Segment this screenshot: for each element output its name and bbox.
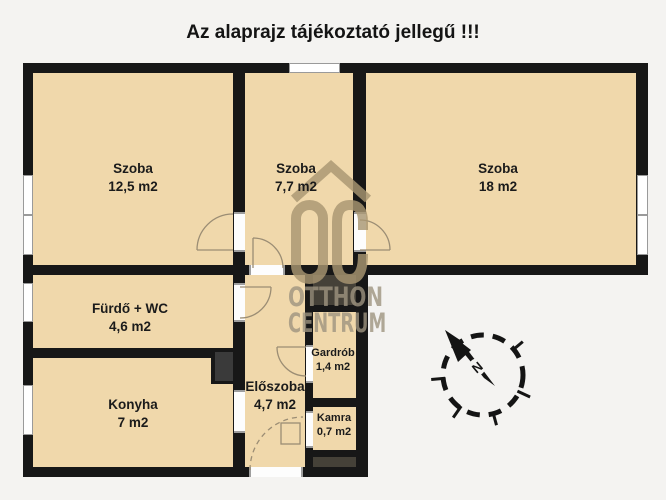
door-leaf-pantry <box>281 423 300 444</box>
room-area: 7 m2 <box>108 414 158 432</box>
door-arc-room-middle <box>253 238 283 268</box>
room-name: Konyha <box>108 396 158 414</box>
room-name: Fürdő + WC <box>92 300 168 318</box>
room-label-szoba-middle: Szoba 7,7 m2 <box>275 160 317 196</box>
door-arc-bathroom <box>240 287 271 318</box>
room-name: Gardrób <box>311 347 354 361</box>
compass-rose: N <box>431 330 530 425</box>
room-label-bathroom: Fürdő + WC 4,6 m2 <box>92 300 168 336</box>
door-swing-arcs <box>197 214 390 470</box>
room-label-closet: Gardrób 1,4 m2 <box>311 347 354 375</box>
door-arc-room-right <box>360 220 390 250</box>
room-label-szoba-left: Szoba 12,5 m2 <box>108 160 158 196</box>
room-label-hall: Előszoba 4,7 m2 <box>245 378 304 414</box>
room-area: 4,7 m2 <box>245 396 304 414</box>
room-area: 18 m2 <box>478 178 518 196</box>
door-arc-closet <box>277 347 306 376</box>
room-area: 1,4 m2 <box>311 361 354 375</box>
room-label-pantry: Kamra 0,7 m2 <box>317 412 351 440</box>
room-area: 4,6 m2 <box>92 318 168 336</box>
room-area: 7,7 m2 <box>275 178 317 196</box>
room-name: Szoba <box>108 160 158 178</box>
door-arc-room-left <box>197 214 233 250</box>
room-name: Szoba <box>478 160 518 178</box>
room-name: Kamra <box>317 412 351 426</box>
room-name: Előszoba <box>245 378 304 396</box>
room-area: 0,7 m2 <box>317 426 351 440</box>
room-label-kitchen: Konyha 7 m2 <box>108 396 158 432</box>
room-area: 12,5 m2 <box>108 178 158 196</box>
room-name: Szoba <box>275 160 317 178</box>
floorplan-canvas: Az alaprajz tájékoztató jellegű !!! <box>0 0 666 500</box>
room-label-szoba-right: Szoba 18 m2 <box>478 160 518 196</box>
